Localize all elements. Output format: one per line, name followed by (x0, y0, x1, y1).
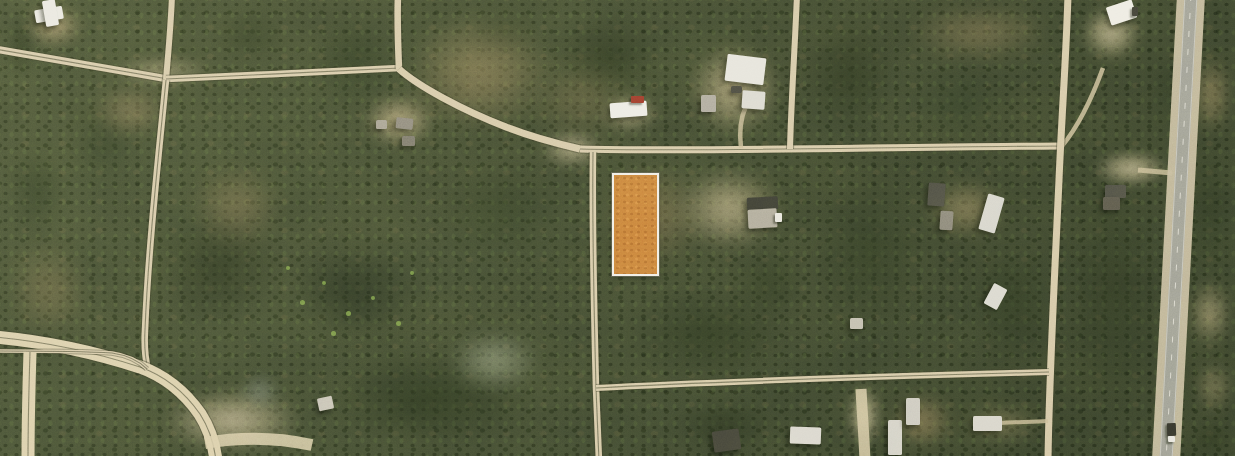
highway-truck-cab (1168, 436, 1175, 442)
farm-shed-1 (376, 120, 387, 129)
road-south-east-road (596, 372, 1049, 388)
small-shed-mid (850, 318, 863, 329)
road-north-vertical-road (790, 0, 797, 149)
farm-shed-3 (402, 136, 415, 146)
mobile-home-cluster-b (741, 90, 765, 110)
gray-house-right (939, 211, 953, 231)
road-north-road-upper (398, 0, 399, 69)
red-truck (631, 96, 644, 103)
road-sw-sand-spur (205, 439, 312, 445)
aerial-map-viewport (0, 0, 1235, 456)
dark-house-right-a (927, 182, 946, 206)
road-west-mid-road (166, 68, 400, 79)
dark-building-south (712, 428, 742, 453)
road-west-vertical-road (145, 80, 166, 370)
road-main-east-road (580, 146, 1062, 150)
road-sw-vertical-road (28, 352, 30, 456)
white-building-north (610, 101, 648, 119)
cluster-dark-shed (731, 86, 742, 93)
road-mid-vertical-road (593, 152, 599, 456)
highway-truck-trailer (1167, 423, 1176, 436)
white-shed-south (888, 420, 902, 455)
center-mobile-home-body (748, 208, 778, 228)
road-junction-curve-se (399, 69, 580, 149)
dark-car-ne (1132, 7, 1138, 16)
mobile-home-cluster-c (701, 95, 716, 112)
white-mobile-home-south (790, 426, 822, 444)
dark-house-east-b (1103, 197, 1120, 210)
white-mobile-home-south2 (973, 416, 1002, 431)
road-driveway-860 (861, 389, 865, 456)
parcel-highlight[interactable] (612, 173, 659, 276)
road-clearing-connector (1138, 170, 1172, 173)
road-nw-road-west (0, 49, 168, 79)
white-car-center (775, 213, 782, 222)
mobile-home-cluster-a (725, 54, 767, 86)
road-nw-road-north (166, 0, 172, 80)
road-cluster-driveway (740, 106, 746, 148)
farm-shed-2 (395, 117, 413, 130)
road-driveway-1000 (1000, 421, 1048, 423)
road-east-vertical-road (1048, 0, 1068, 456)
white-trailers-south (906, 398, 920, 425)
